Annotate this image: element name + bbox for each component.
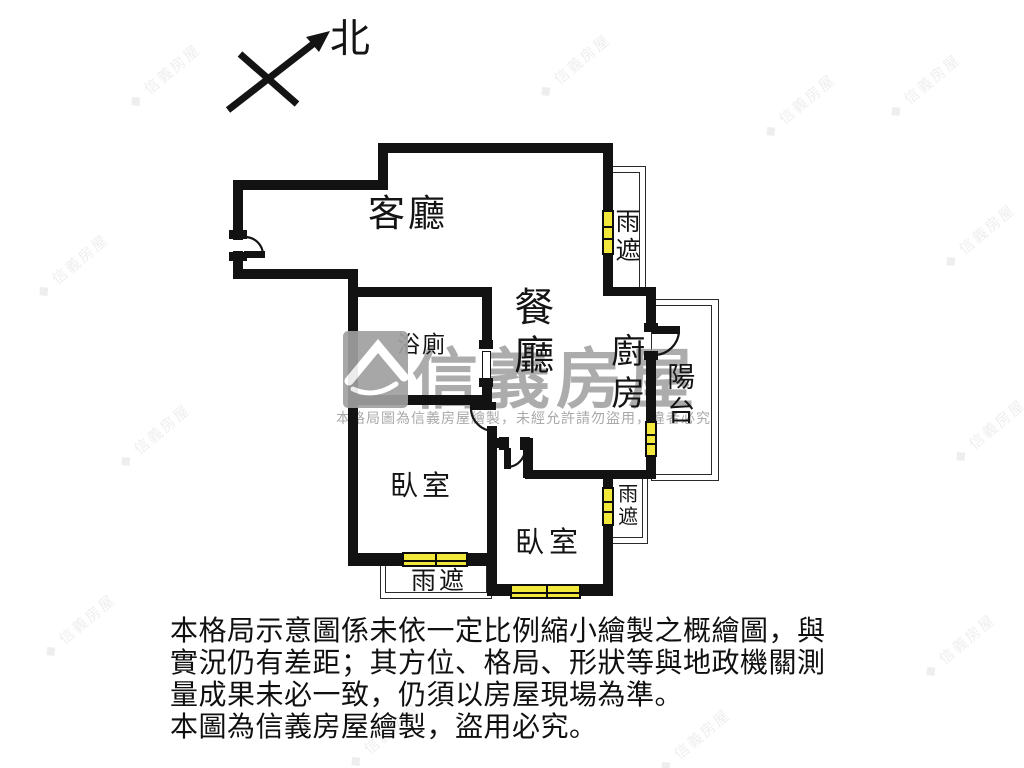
north-arrow-icon [228, 31, 330, 110]
window [402, 552, 468, 567]
kitchen-door-arc [655, 331, 679, 355]
floorplan: 北 客廳 餐廳 浴廁 廚房 陽台 臥室 臥室 雨遮 雨遮 雨遮 信義房屋 本格局… [0, 0, 1024, 768]
entrance-door-arc [245, 237, 263, 255]
window [602, 487, 614, 526]
door-arcs-and-north-arrow [0, 0, 1024, 768]
bedroom-left-door-arc [471, 409, 494, 431]
sinyi-logo-icon [343, 331, 408, 408]
window [645, 421, 657, 457]
bathroom-door-leaf [482, 351, 491, 379]
bedroom-right-door-arc [507, 449, 525, 467]
window [510, 584, 581, 599]
window [602, 210, 614, 255]
